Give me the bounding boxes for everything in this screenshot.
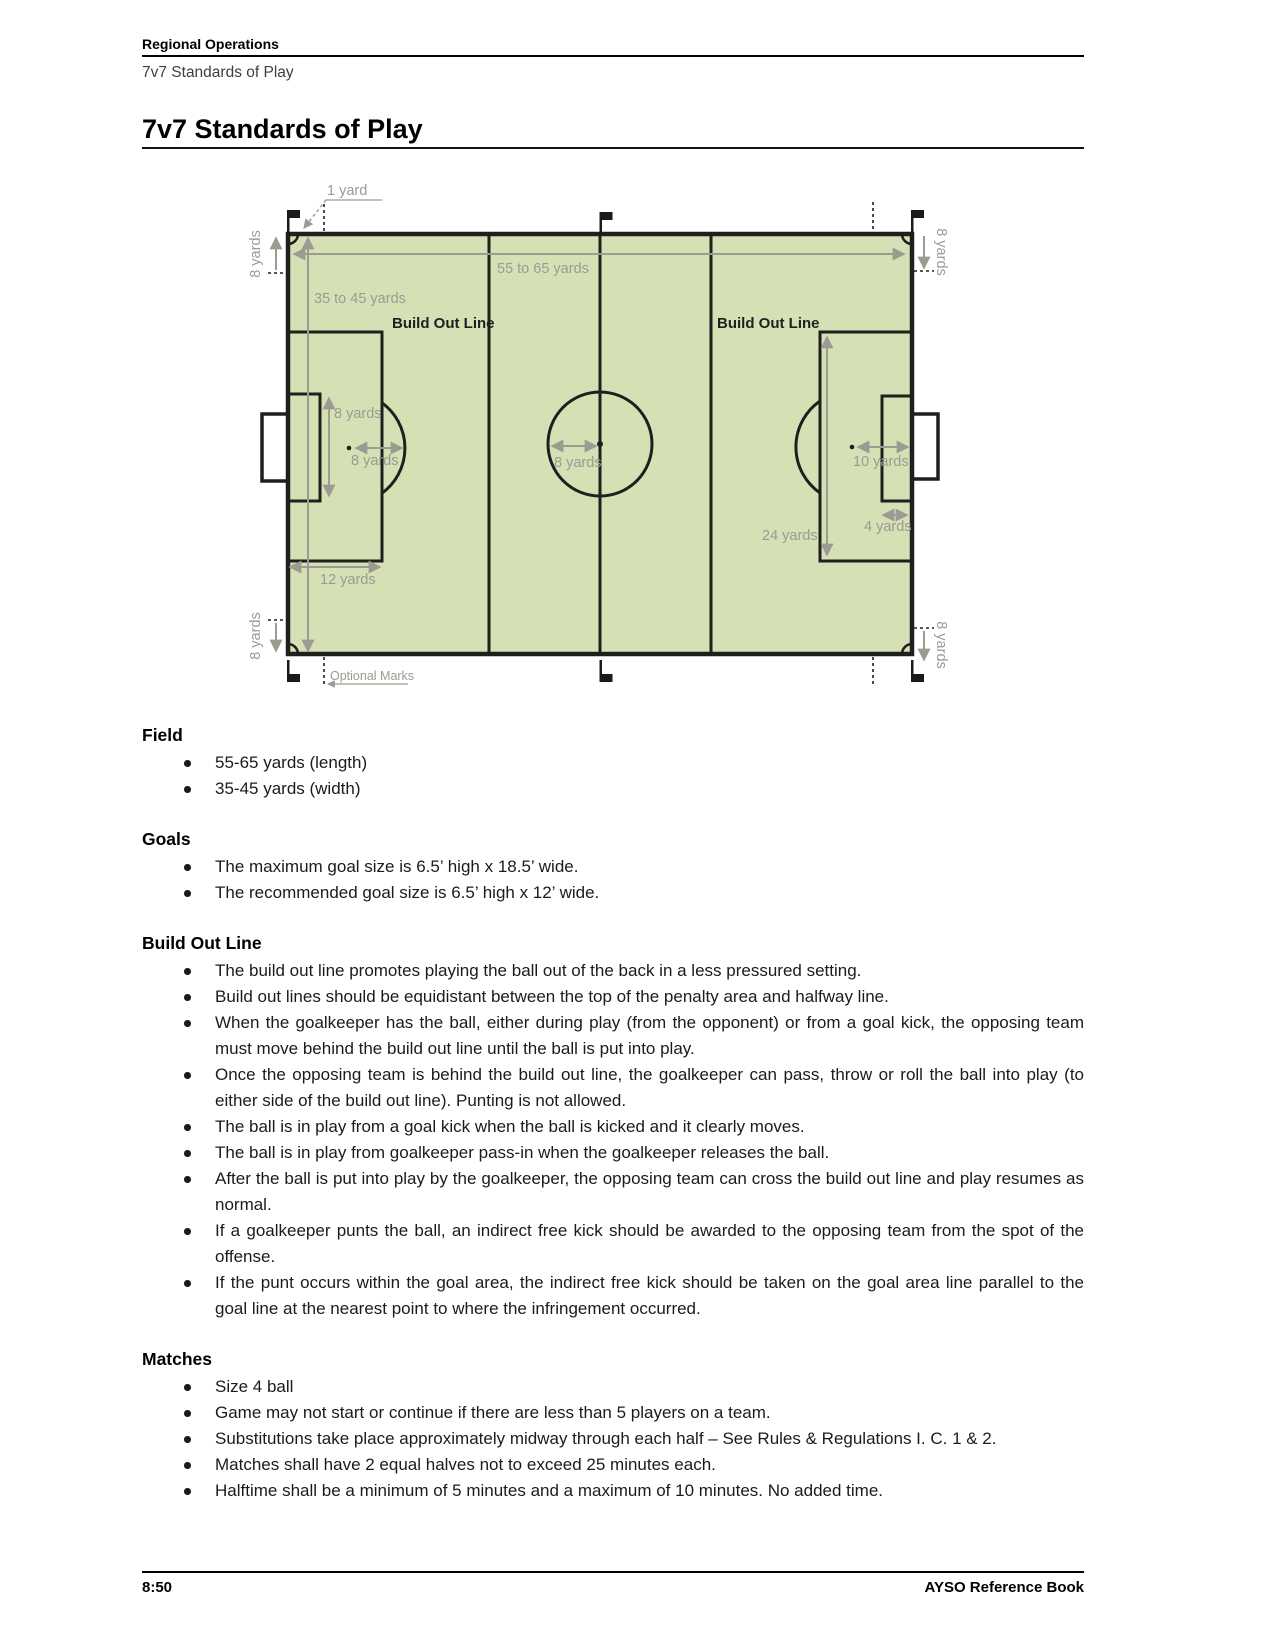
bullet-text: The maximum goal size is 6.5’ high x 18.…	[215, 854, 1084, 880]
bullet-text: The ball is in play from a goal kick whe…	[215, 1114, 1084, 1140]
flag-icon	[287, 674, 300, 682]
list-item: Size 4 ball	[142, 1374, 1084, 1400]
penalty-spot-left	[347, 446, 352, 451]
bullet-text: If a goalkeeper punts the ball, an indir…	[215, 1218, 1084, 1270]
label-penalty-area-height: 24 yards	[762, 528, 818, 544]
list-item: If the punt occurs within the goal area,…	[142, 1270, 1084, 1322]
section-heading-field: Field	[142, 722, 1084, 748]
bullet-text: After the ball is put into play by the g…	[215, 1166, 1084, 1218]
list-item: After the ball is put into play by the g…	[142, 1166, 1084, 1218]
bullet-text: The ball is in play from goalkeeper pass…	[215, 1140, 1084, 1166]
list-item: The recommended goal size is 6.5’ high x…	[142, 880, 1084, 906]
bullet-text: When the goalkeeper has the ball, either…	[215, 1010, 1084, 1062]
goal-right	[912, 414, 938, 479]
header-subtitle: 7v7 Standards of Play	[142, 64, 1084, 82]
label-penalty-spot-right: 10 yards	[853, 454, 909, 470]
label-corner-mark-top-left: 8 yards	[248, 230, 264, 278]
page-header: Regional Operations 7v7 Standards of Pla…	[142, 0, 1084, 82]
list-item: Game may not start or continue if there …	[142, 1400, 1084, 1426]
list-item: 35-45 yards (width)	[142, 776, 1084, 802]
bullet-list-goals: The maximum goal size is 6.5’ high x 18.…	[142, 854, 1084, 906]
label-goal-area-depth: 4 yards	[864, 519, 912, 535]
goal-left	[262, 414, 288, 481]
bullet-text: Halftime shall be a minimum of 5 minutes…	[215, 1478, 1084, 1504]
document-page: Regional Operations 7v7 Standards of Pla…	[0, 0, 1275, 1650]
list-item: 55-65 yards (length)	[142, 750, 1084, 776]
penalty-spot-right	[850, 445, 855, 450]
label-optional-marks: Optional Marks	[330, 669, 414, 683]
flag-icon	[600, 674, 613, 682]
bullet-text: 55-65 yards (length)	[215, 750, 1084, 776]
label-penalty-area-width: 12 yards	[320, 572, 376, 588]
bullet-text: 35-45 yards (width)	[215, 776, 1084, 802]
bullet-text: Substitutions take place approximately m…	[215, 1426, 1084, 1452]
bullet-list-matches: Size 4 ball Game may not start or contin…	[142, 1374, 1084, 1504]
flag-icon	[600, 212, 613, 220]
flag-icon	[911, 674, 924, 682]
label-corner-mark-top-right: 8 yards	[933, 228, 949, 276]
footer-page-number: 8:50	[142, 1579, 172, 1596]
bullet-text: Size 4 ball	[215, 1374, 1084, 1400]
one-yard-pointer	[304, 200, 326, 228]
label-field-width: 35 to 45 yards	[314, 291, 406, 307]
flag-icon	[287, 210, 300, 218]
label-corner-mark-bottom-right: 8 yards	[933, 621, 949, 669]
header-rule	[142, 55, 1084, 57]
field-diagram: 1 yard 55 to 65 yards 35 to 45 yards Bui…	[230, 170, 954, 692]
label-goal-area-height: 8 yards	[334, 406, 382, 422]
page-content: Regional Operations 7v7 Standards of Pla…	[142, 0, 1084, 1504]
bullet-text: Matches shall have 2 equal halves not to…	[215, 1452, 1084, 1478]
soccer-field-svg: 1 yard 55 to 65 yards 35 to 45 yards Bui…	[230, 170, 954, 692]
list-item: Halftime shall be a minimum of 5 minutes…	[142, 1478, 1084, 1504]
bullet-text: Once the opposing team is behind the bui…	[215, 1062, 1084, 1114]
section-heading-matches: Matches	[142, 1346, 1084, 1372]
bullet-text: Build out lines should be equidistant be…	[215, 984, 1084, 1010]
list-item: The ball is in play from a goal kick whe…	[142, 1114, 1084, 1140]
bullet-list-field: 55-65 yards (length) 35-45 yards (width)	[142, 750, 1084, 802]
list-item: If a goalkeeper punts the ball, an indir…	[142, 1218, 1084, 1270]
bullet-text: If the punt occurs within the goal area,…	[215, 1270, 1084, 1322]
label-one-yard: 1 yard	[327, 183, 367, 199]
section-heading-build-out-line: Build Out Line	[142, 930, 1084, 956]
page-footer: 8:50 AYSO Reference Book	[142, 1571, 1084, 1596]
bullet-text: The recommended goal size is 6.5’ high x…	[215, 880, 1084, 906]
label-center-radius: 8 yards	[554, 455, 602, 471]
list-item: The ball is in play from goalkeeper pass…	[142, 1140, 1084, 1166]
list-item: The build out line promotes playing the …	[142, 958, 1084, 984]
label-build-out-line-left: Build Out Line	[392, 315, 495, 332]
footer-book-title: AYSO Reference Book	[924, 1579, 1084, 1596]
page-title: 7v7 Standards of Play	[142, 115, 1084, 149]
flag-icon	[911, 210, 924, 218]
list-item: When the goalkeeper has the ball, either…	[142, 1010, 1084, 1062]
label-build-out-line-right: Build Out Line	[717, 315, 820, 332]
bullet-text: Game may not start or continue if there …	[215, 1400, 1084, 1426]
list-item: Substitutions take place approximately m…	[142, 1426, 1084, 1452]
label-corner-mark-bottom-left: 8 yards	[248, 612, 264, 660]
label-field-length: 55 to 65 yards	[497, 261, 589, 277]
section-heading-goals: Goals	[142, 826, 1084, 852]
bullet-text: The build out line promotes playing the …	[215, 958, 1084, 984]
label-penalty-spot-left: 8 yards	[351, 453, 399, 469]
list-item: The maximum goal size is 6.5’ high x 18.…	[142, 854, 1084, 880]
list-item: Matches shall have 2 equal halves not to…	[142, 1452, 1084, 1478]
center-spot	[597, 441, 603, 447]
header-section-label: Regional Operations	[142, 36, 1084, 52]
list-item: Once the opposing team is behind the bui…	[142, 1062, 1084, 1114]
list-item: Build out lines should be equidistant be…	[142, 984, 1084, 1010]
bullet-list-build-out-line: The build out line promotes playing the …	[142, 958, 1084, 1322]
